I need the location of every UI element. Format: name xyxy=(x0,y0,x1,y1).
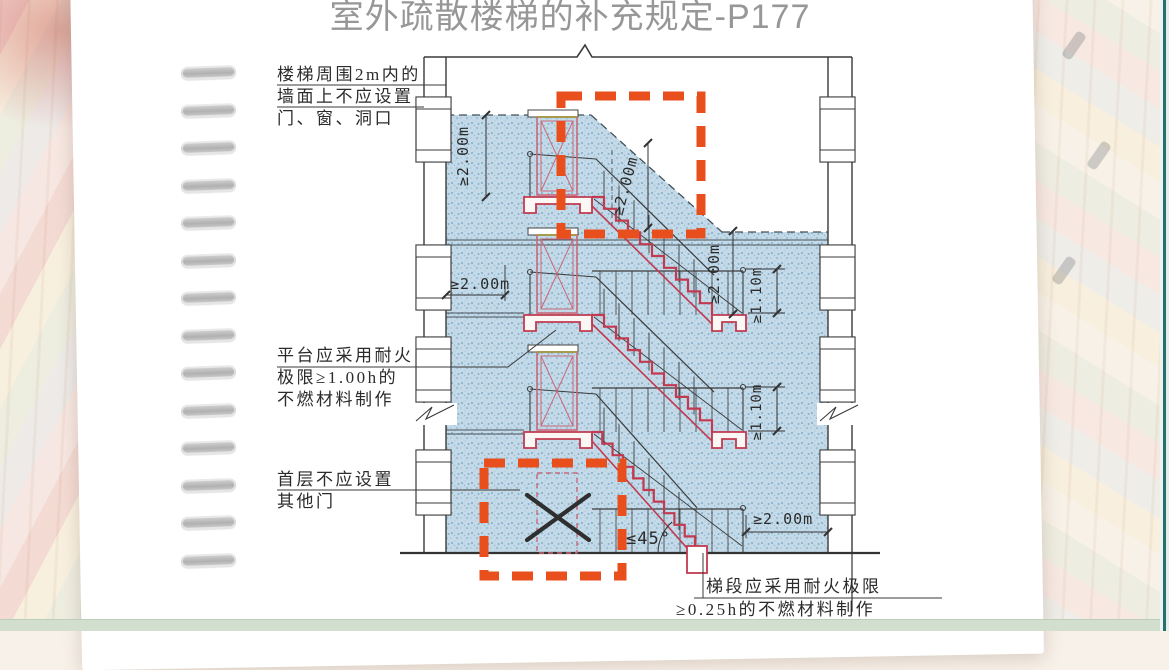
dim-ground-clearance: ≥2.00m xyxy=(753,510,813,528)
door-lintel xyxy=(528,110,578,117)
note-flight-1: 梯段应采用耐火极限 xyxy=(706,577,882,596)
dim-right-height: ≥2.00m xyxy=(705,244,723,304)
stair-base-post xyxy=(687,546,707,573)
dim-railing-upper: ≥1.10m xyxy=(749,267,765,324)
note-first-floor-1: 首层不应设置 xyxy=(277,470,394,489)
slide-bottom-edge xyxy=(0,619,1169,631)
dim-slope-angle: ≤45° xyxy=(626,529,671,549)
note-platform-3: 不燃材料制作 xyxy=(277,390,394,409)
note-flight-2: ≥0.25h的不燃材料制作 xyxy=(676,600,875,619)
note-platform-1: 平台应采用耐火 xyxy=(277,346,414,365)
protected-zone xyxy=(446,115,828,553)
dim-left-height: ≥2.00m xyxy=(454,126,472,186)
stair-section-diagram: ≥2.00m ≥2.00m ≥2.00m ≥2.00m ≥1.10m ≥1.10… xyxy=(0,0,1169,631)
note-wall-zone-1: 楼梯周围2m内的 xyxy=(277,65,421,84)
slide-right-edge xyxy=(1160,0,1169,631)
dim-landing-width: ≥2.00m xyxy=(450,275,510,293)
note-first-floor-2: 其他门 xyxy=(277,492,336,511)
dim-railing-lower: ≥1.10m xyxy=(749,384,765,441)
note-wall-zone-2: 墙面上不应设置 xyxy=(277,87,414,106)
note-platform-2: 极限≥1.00h的 xyxy=(277,368,398,387)
note-wall-zone-3: 门、窗、洞口 xyxy=(277,109,394,128)
